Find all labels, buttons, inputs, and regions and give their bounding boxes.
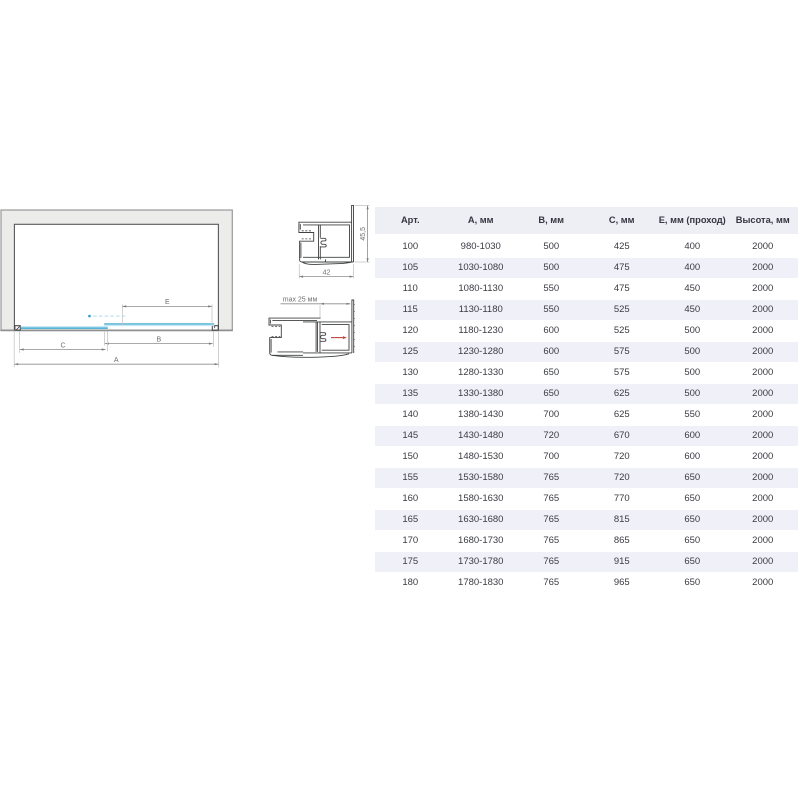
svg-text:A: A <box>114 357 119 364</box>
svg-text:C: C <box>60 342 65 349</box>
svg-text:45,5: 45,5 <box>360 227 367 241</box>
svg-text:E: E <box>165 299 170 306</box>
svg-text:42: 42 <box>323 270 331 277</box>
svg-text:B: B <box>156 336 161 343</box>
svg-text:max 25 мм: max 25 мм <box>283 297 318 304</box>
